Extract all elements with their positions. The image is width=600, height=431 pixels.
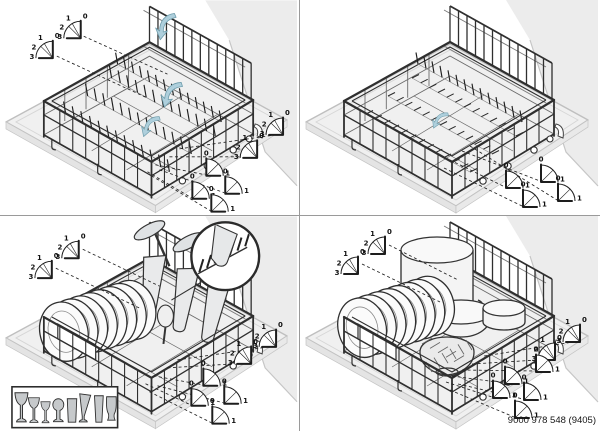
position-label-3: 3 bbox=[55, 253, 60, 261]
position-label-1: 1 bbox=[565, 318, 570, 326]
panel-glassware-loading: 0123 0123 0123 0123 01 01 01 01 bbox=[0, 216, 299, 431]
tine-position-indicator-4pos: 0123 bbox=[55, 232, 85, 261]
position-label-3: 3 bbox=[335, 269, 340, 277]
position-label-1: 1 bbox=[540, 336, 545, 344]
position-label-1: 1 bbox=[244, 187, 249, 195]
position-label-0: 0 bbox=[503, 358, 508, 366]
position-label-3: 3 bbox=[57, 33, 62, 41]
position-label-3: 3 bbox=[234, 153, 239, 161]
position-label-3: 3 bbox=[228, 359, 233, 367]
position-label-0: 0 bbox=[278, 321, 283, 329]
document-number: 9000 978 548 (9405) bbox=[508, 415, 596, 426]
position-label-0: 0 bbox=[190, 172, 195, 180]
tine-position-indicator-4pos: 0123 bbox=[30, 32, 60, 61]
position-label-1: 1 bbox=[37, 254, 42, 262]
panel-cookware-loading: 0123 0123 0123 0123 01 01 01 01 01 9000 … bbox=[300, 216, 600, 431]
tine-position-indicator-4pos: 0123 bbox=[335, 248, 365, 277]
glass-types-legend bbox=[12, 387, 118, 428]
tines-folded-illustration: 01 01 01 01 bbox=[300, 0, 600, 215]
position-label-1: 1 bbox=[560, 176, 565, 184]
position-label-1: 1 bbox=[38, 34, 43, 42]
tine-position-indicator-2pos: 01 bbox=[223, 167, 249, 195]
position-label-1: 1 bbox=[230, 205, 235, 213]
position-label-1: 1 bbox=[525, 182, 530, 190]
glassware-loading-illustration: 0123 0123 0123 0123 01 01 01 01 bbox=[0, 216, 299, 431]
position-label-0: 0 bbox=[259, 132, 264, 140]
position-label-2: 2 bbox=[236, 143, 241, 151]
position-label-1: 1 bbox=[64, 234, 69, 242]
position-label-0: 0 bbox=[513, 392, 518, 400]
position-label-1: 1 bbox=[343, 250, 348, 258]
position-label-1: 1 bbox=[243, 397, 248, 405]
position-label-1: 1 bbox=[66, 14, 71, 22]
position-label-0: 0 bbox=[204, 149, 209, 157]
tine-position-indicator-2pos: 01 bbox=[521, 181, 547, 209]
position-label-1: 1 bbox=[543, 394, 548, 402]
position-label-0: 0 bbox=[539, 156, 544, 164]
position-label-1: 1 bbox=[268, 111, 273, 119]
position-label-2: 2 bbox=[31, 264, 36, 272]
position-label-2: 2 bbox=[230, 349, 235, 357]
tine-position-indicator-4pos: 0123 bbox=[362, 228, 392, 257]
position-label-2: 2 bbox=[262, 120, 267, 128]
tine-position-indicator-4pos: 0123 bbox=[57, 12, 87, 41]
position-label-0: 0 bbox=[387, 228, 392, 236]
tall-glass-icon bbox=[94, 396, 103, 422]
small-pot bbox=[483, 300, 525, 330]
position-label-0: 0 bbox=[534, 346, 539, 354]
position-label-2: 2 bbox=[364, 240, 369, 248]
position-label-2: 2 bbox=[57, 244, 62, 252]
position-label-1: 1 bbox=[555, 366, 560, 374]
position-label-0: 0 bbox=[491, 372, 496, 380]
cookware-loading-illustration: 0123 0123 0123 0123 01 01 01 01 01 9000 … bbox=[300, 216, 600, 431]
fold-down-tines-illustration: 0123 0123 0123 0123 01 01 01 01 bbox=[0, 0, 299, 215]
tine-position-indicator-2pos: 01 bbox=[539, 156, 565, 184]
position-label-0: 0 bbox=[285, 109, 290, 117]
position-label-0: 0 bbox=[210, 397, 215, 405]
position-label-0: 0 bbox=[253, 338, 258, 346]
four-panel-grid: 0123 0123 0123 0123 01 01 01 01 bbox=[0, 0, 600, 431]
tine-position-indicator-2pos: 01 bbox=[556, 175, 582, 203]
tine-position-indicator-4pos: 0123 bbox=[29, 252, 59, 281]
dishwasher-manual-loading-diagram: 0123 0123 0123 0123 01 01 01 01 bbox=[0, 0, 600, 431]
position-label-3: 3 bbox=[362, 249, 367, 257]
position-label-0: 0 bbox=[83, 12, 88, 20]
position-label-2: 2 bbox=[59, 24, 64, 32]
position-label-1: 1 bbox=[261, 323, 266, 331]
position-label-3: 3 bbox=[30, 53, 35, 61]
position-label-1: 1 bbox=[231, 417, 236, 425]
position-label-1: 1 bbox=[542, 201, 547, 209]
position-label-3: 3 bbox=[29, 273, 34, 281]
position-label-1: 1 bbox=[577, 195, 582, 203]
position-label-1: 1 bbox=[236, 340, 241, 348]
position-label-0: 0 bbox=[557, 334, 562, 342]
position-label-1: 1 bbox=[370, 230, 375, 238]
position-label-0: 0 bbox=[81, 232, 86, 240]
position-label-0: 0 bbox=[223, 167, 228, 175]
panel-tines-folded: 01 01 01 01 bbox=[300, 0, 600, 215]
position-label-0: 0 bbox=[209, 185, 214, 193]
position-label-0: 0 bbox=[201, 359, 206, 367]
position-label-2: 2 bbox=[337, 260, 342, 268]
panel-fold-down-tines: 0123 0123 0123 0123 01 01 01 01 bbox=[0, 0, 299, 215]
position-label-1: 1 bbox=[242, 134, 247, 142]
position-label-0: 0 bbox=[556, 175, 561, 183]
position-label-2: 2 bbox=[32, 44, 37, 52]
tine-position-indicator-2pos: 01 bbox=[222, 377, 248, 405]
position-label-0: 0 bbox=[222, 377, 227, 385]
position-label-0: 0 bbox=[504, 162, 509, 170]
tumbler-icon bbox=[67, 399, 76, 422]
position-label-0: 0 bbox=[189, 379, 194, 387]
position-label-0: 0 bbox=[582, 316, 587, 324]
position-label-0: 0 bbox=[522, 374, 527, 382]
position-label-0: 0 bbox=[521, 181, 526, 189]
